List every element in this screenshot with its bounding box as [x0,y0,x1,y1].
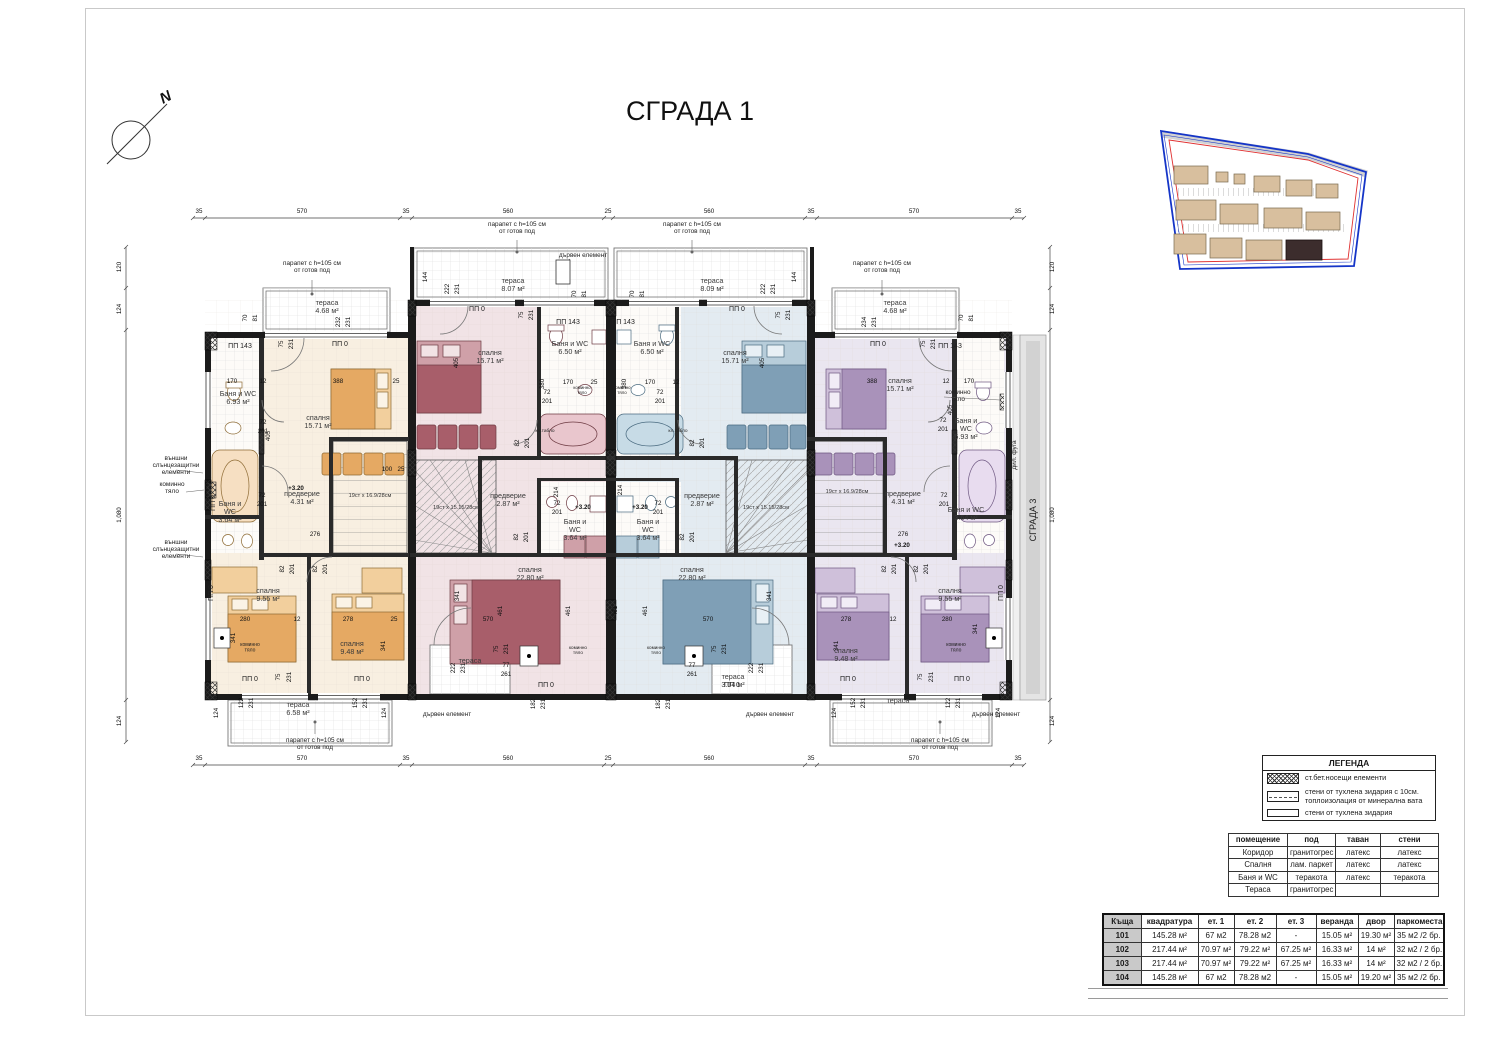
dim-label: 201 [552,509,563,516]
room-label: спалня15.71 м² [721,348,749,365]
dim-label: 201 [689,531,696,542]
dim-label: 201 [923,563,930,574]
table-cell: латекс [1381,859,1439,872]
dim-label: 231 [528,309,535,320]
table-cell: лам. паркет [1288,859,1336,872]
table-cell: Коридор [1229,846,1288,859]
dim-label: 341 [454,590,461,601]
table-cell: латекс [1336,859,1381,872]
room-label: спалня9.55 м² [256,586,280,603]
room-label: спалня9.48 м² [340,639,364,656]
dim-label: 560 [704,755,715,762]
dim-label: 82 [279,565,286,572]
legend-item-label: стени от тухлена зидария с 10см. топлоиз… [1305,788,1422,805]
dim-label: 35 [808,755,815,762]
annotation: дървен елемент [423,711,471,718]
dim-label: 231 [930,338,937,349]
dim-label: 201 [257,501,268,508]
dim-label: 124 [116,303,123,314]
room-label: тераса8.07 м² [501,276,525,293]
dim-label: 72 [260,419,267,426]
dim-label: 75 [711,645,718,652]
table-cell: 15.05 м² [1316,971,1358,986]
legend-item: ст.бет.носещи елементи [1263,771,1435,786]
annotation: външнислънцезащитниелементи [153,455,200,476]
dim-label: 231 [665,698,672,709]
dim-label: 231 [454,283,461,294]
dim-label: 81 [639,290,646,297]
dim-label: 231 [770,283,777,294]
dim-label: 124 [213,707,220,718]
table-cell: 104 [1103,971,1141,986]
table-row: Терасагранитогрес [1229,884,1439,897]
insulated-wall-swatch-icon [1267,791,1299,802]
dim-label: 231 [248,697,255,708]
drawing-sheet: { "title": "СГРАДА 1", "north": {"label"… [0,0,1500,1060]
dim-label: 144 [422,271,429,282]
dim-label: 1,080 [116,507,123,523]
floor-marker: ПП 143 [611,319,635,326]
dim-label: 77 [503,662,510,669]
dim-label: 388 [867,378,878,385]
site-highlighted-building [1286,240,1322,260]
dim-label: 570 [297,208,308,215]
dim-label: 1,080 [1049,507,1056,523]
dim-label: 201 [523,531,530,542]
table-cell: 145.28 м² [1141,929,1198,943]
room-label: тераса6.58 м² [286,700,310,717]
dim-label: 201 [653,509,664,516]
dim-label: 72 [544,389,551,396]
dim-label: 231 [955,697,962,708]
table-row: Спалнялам. паркетлатекслатекс [1229,859,1439,872]
table-row: 103217.44 м²70.97 м²79.22 м²67.25 м²16.3… [1103,957,1444,971]
dim-label: 231 [362,697,369,708]
table-cell: латекс [1336,846,1381,859]
dim-label: 231 [503,643,510,654]
table-cell: 35 м2 /2 бр. [1394,929,1444,943]
annotation: СГРАДА 3 [1028,499,1038,542]
dim-label: 214 [553,486,560,497]
dim-label: 25 [605,755,612,762]
table-cell: 67.25 м² [1276,943,1316,957]
dim-label: 72 [941,492,948,499]
dim-label: 461 [612,605,619,616]
dim-label: 152 [850,697,857,708]
floor-marker: ПП 0 [208,585,215,601]
dim-label: 231 [758,662,765,673]
dim-label: 12 [260,378,267,385]
dim-label: 72 [657,389,664,396]
dim-label: 25 [391,616,398,623]
table-cell [1381,884,1439,897]
floor-marker: ПП 0 [538,682,554,689]
floor-marker: ПП 0 [954,676,970,683]
dim-label: 35 [808,208,815,215]
table-cell: 103 [1103,957,1141,971]
dim-label: 461 [497,605,504,616]
dim-label: 35 [1015,755,1022,762]
table-cell: 16.33 м² [1316,943,1358,957]
dim-label: 72 [940,417,947,424]
table-cell: гранитогрес [1288,846,1336,859]
dim-label: 170 [227,378,238,385]
dim-label: 222 [444,283,451,294]
annotation: дървен елемент [559,252,607,259]
dim-label: 341 [972,623,979,634]
dim-label: 278 [841,616,852,623]
dim-label: 231 [721,643,728,654]
dim-label: 201 [699,437,706,448]
dim-label: 405 [947,404,954,415]
dim-label: 70 [958,314,965,321]
table-cell: 14 м² [1358,957,1394,971]
table-cell: теракота [1381,871,1439,884]
north-line [107,104,167,164]
dim-label: 182 [530,698,537,709]
dim-label: 201 [542,398,553,405]
dim-label: 201 [891,563,898,574]
dim-label: 182 [655,698,662,709]
dim-label: 231 [345,316,352,327]
floor-marker: ПП 143 [228,343,252,350]
floor-marker: ПП 0 [998,585,1005,601]
table-cell: - [1276,971,1316,986]
dim-label: 120 [1049,261,1056,272]
floor-marker: ПП 0 [840,676,856,683]
table-cell: 19.30 м² [1358,929,1394,943]
table-header: ет. 2 [1234,914,1276,929]
north-arrow: N [105,90,185,180]
dim-label: 75 [917,673,924,680]
dim-label: 201 [655,398,666,405]
table-cell: 79.22 м² [1234,943,1276,957]
table-cell: 101 [1103,929,1141,943]
table-cell: 67 м2 [1198,929,1234,943]
table-cell: 70.97 м² [1198,943,1234,957]
table-header: стени [1381,834,1439,847]
dim-label: 25 [605,208,612,215]
dim-label: 75 [920,340,927,347]
dim-label: 75 [278,340,285,347]
dim-label: 12 [294,616,301,623]
table-cell: 32 м2 / 2 бр. [1394,957,1444,971]
table-cell: 78.28 м2 [1234,929,1276,943]
dim-label: 144 [791,271,798,282]
concrete-swatch-icon [1267,773,1299,784]
north-label: N [157,90,176,108]
dim-label: 570 [297,755,308,762]
floor-marker: ПП 0 [469,306,485,313]
table-header: под [1288,834,1336,847]
dim-label: 201 [524,437,531,448]
legend-item-label: ст.бет.носещи елементи [1305,774,1386,783]
dim-label: 261 [687,671,698,678]
table-cell: 32 м2 / 2 бр. [1394,943,1444,957]
table-header: ет. 3 [1276,914,1316,929]
dim-label: 82 [913,565,920,572]
dim-label: 461 [565,605,572,616]
table-row: 101145.28 м²67 м278.28 м2-15.05 м²19.30 … [1103,929,1444,943]
table-header: ет. 1 [1198,914,1234,929]
legend-item: стени от тухлена зидария с 10см. топлоиз… [1263,786,1435,807]
annotation: дил. фуга [1011,440,1018,470]
table-row: Коридоргранитогреслатекслатекс [1229,846,1439,859]
dim-label: 222 [748,662,755,673]
annotation: дървен елемент [746,711,794,718]
floor-marker: ПП 0 [354,676,370,683]
annotation: парапет с h=105 смот готов под [488,221,546,235]
level-mark: +3.20 [288,485,304,492]
floor-marker: ПП 0 [210,495,217,511]
brick-wall-swatch-icon [1267,809,1299,817]
table-cell: 217.44 м² [1141,943,1198,957]
dim-label: 560 [503,208,514,215]
floor-marker: ПП 0 [242,676,258,683]
page-title: СГРАДА 1 [85,96,1295,127]
dim-label: 82 [513,533,520,540]
dim-label: 231 [785,309,792,320]
dim-label: 12 [890,616,897,623]
title-block-line [1088,988,1448,989]
table-cell: 78.28 м2 [1234,971,1276,986]
dim-label: 570 [909,208,920,215]
table-cell: 16.33 м² [1316,957,1358,971]
table-cell: 70.97 м² [1198,957,1234,971]
table-cell: 67 м2 [1198,971,1234,986]
dim-label: 120 [116,261,123,272]
dim-label: 276 [310,531,321,538]
table-cell: 145.28 м² [1141,971,1198,986]
dim-label: 170 [563,379,574,386]
dim-label: 124 [995,707,1002,718]
dim-label: 170 [645,379,656,386]
dim-label: 231 [288,338,295,349]
dim-label: 124 [1049,303,1056,314]
table-row: Баня и WCтеракоталатекстеракота [1229,871,1439,884]
dim-label: 560 [704,208,715,215]
table-cell: 217.44 м² [1141,957,1198,971]
dim-label: 214 [617,484,624,495]
annotation: кл.табло [535,428,554,434]
dim-label: 201 [938,426,949,433]
table-cell: 102 [1103,943,1141,957]
dim-label: 152 [352,697,359,708]
dim-label: 124 [1049,715,1056,726]
dim-label: 380 [539,378,546,389]
table-header: паркоместа [1394,914,1444,929]
dim-label: 234 [861,316,868,327]
dim-label: 232 [335,316,342,327]
dim-label: 75 [493,645,500,652]
dim-label: 35 [403,208,410,215]
dim-label: 405 [453,357,460,368]
dim-label: 124 [116,715,123,726]
table-cell: Баня и WC [1229,871,1288,884]
dim-label: 570 [703,616,714,623]
room-label: спалня22.80 м² [678,565,706,582]
dim-label: 231 [540,698,547,709]
dim-label: 560 [503,755,514,762]
dim-label: 280 [240,616,251,623]
annotation: парапет с h=105 смот готов под [853,260,911,274]
dim-label: 341 [380,640,387,651]
site-plan-inset [1158,126,1370,281]
dim-label: 82 [689,439,696,446]
dim-label: 278 [343,616,354,623]
table-cell: Спалня [1229,859,1288,872]
table-cell: латекс [1381,846,1439,859]
dim-label: 72 [655,500,662,507]
floor-marker: ПП 143 [556,319,580,326]
level-mark: +3.20 [632,504,648,511]
table-cell [1336,884,1381,897]
room-label: спалня9.55 м² [938,586,962,603]
dim-label: 405 [759,357,766,368]
dim-label: 261 [501,671,512,678]
dim-label: 81 [252,314,259,321]
legend-item: стени от тухлена зидария [1263,807,1435,820]
room-label: спалня15.71 м² [886,376,914,393]
dim-label: 570 [909,755,920,762]
room-label: спалня22.80 м² [516,565,544,582]
legend-box: ЛЕГЕНДА ст.бет.носещи елементи стени от … [1262,755,1436,821]
title-block-line [1088,998,1448,999]
room-label: спалня15.71 м² [476,348,504,365]
dim-label: 122 [238,697,245,708]
dim-label: 70 [571,290,578,297]
dim-label: 12 [943,378,950,385]
dim-label: 570 [483,616,494,623]
table-cell: 19.20 м² [1358,971,1394,986]
dim-label: 25 [591,379,598,386]
table-cell: 35 м2 /2 бр. [1394,971,1444,986]
dim-label: 35 [1015,208,1022,215]
dim-label: 75 [518,311,525,318]
table-cell: 67.25 м² [1276,957,1316,971]
dim-label: 201 [258,428,269,435]
dim-label: 122 [945,697,952,708]
floor-marker: ПП 0 [870,341,886,348]
materials-table: помещениеподтаванстениКоридоргранитогрес… [1228,833,1439,897]
dim-label: 201 [939,501,950,508]
dim-label: 231 [871,316,878,327]
table-cell: гранитогрес [1288,884,1336,897]
dim-label: 341 [833,640,840,651]
dim-label: 280 [942,616,953,623]
legend-title: ЛЕГЕНДА [1263,756,1435,771]
dim-label: 461 [642,605,649,616]
table-header: Къща [1103,914,1141,929]
dim-label: 276 [898,531,909,538]
dim-label: 341 [230,632,237,643]
room-label: спалня15.71 м² [304,413,332,430]
dim-label: 231 [928,671,935,682]
dim-label: 81 [581,290,588,297]
dim-label: 170 [964,378,975,385]
dim-label: 380 [621,378,628,389]
dim-label: 222 [450,662,457,673]
annotation: кл.табло [668,428,687,434]
stairs-label: 19ст х 16.9/28см [349,493,392,499]
floor-marker: ПП 0 [332,341,348,348]
room-label: тераса [887,696,910,705]
room-label: тераса4.68 м² [315,298,339,315]
dim-label: 222 [760,283,767,294]
table-cell: 15.05 м² [1316,929,1358,943]
level-mark: +3.20 [894,542,910,549]
annotation: външнислънцезащитниелементи [153,539,200,560]
stairs-label: 19ст х 15.15/28см [433,505,479,511]
room-label: тераса4.68 м² [883,298,907,315]
room-label: тераса8.09 м² [700,276,724,293]
dim-label: 35 [196,208,203,215]
dim-label: 82 [312,565,319,572]
level-mark: +3.20 [575,504,591,511]
dim-label: 231 [460,662,467,673]
stairs-label: 19ст х 15.15/28см [743,505,789,511]
dim-label: 72 [259,492,266,499]
dim-label: 124 [831,707,838,718]
dim-label: 388 [333,378,344,385]
dim-label: 231 [860,697,867,708]
annotation: парапет с h=105 смот готов под [663,221,721,235]
dim-label: 81 [968,314,975,321]
dim-label: 72 [554,500,561,507]
table-header: помещение [1229,834,1288,847]
dim-label: 75 [775,311,782,318]
table-row: 104145.28 м²67 м278.28 м2-15.05 м²19.20 … [1103,971,1444,986]
table-cell: латекс [1336,871,1381,884]
dim-label: 70 [629,290,636,297]
stairs-label: 19ст х 16.9/28см [826,489,869,495]
dim-label: 35 [196,755,203,762]
table-cell: - [1276,929,1316,943]
dim-label: 70 [242,314,249,321]
table-header: квадратура [1141,914,1198,929]
dim-label: 35 [403,755,410,762]
floor-marker: ПП 0 [724,682,740,689]
dim-label: 341 [766,590,773,601]
dim-label: 82 [679,533,686,540]
dim-label: 12 [673,379,680,386]
table-row: 102217.44 м²70.97 м²79.22 м²67.25 м²16.3… [1103,943,1444,957]
dim-label: 100 [382,466,393,473]
dim-label: 124 [381,707,388,718]
dim-label: 201 [289,563,296,574]
table-cell: 79.22 м² [1234,957,1276,971]
table-header: таван [1336,834,1381,847]
floor-plan: тераса4.68 м²Баня и WC6.93 м²спалня15.71… [85,190,1070,815]
dim-label: 25 [393,378,400,385]
floor-marker: ПП 143 [938,343,962,350]
table-cell: 14 м² [1358,943,1394,957]
dim-label: 231 [286,671,293,682]
dim-label: 75 [275,673,282,680]
dim-label: 82 [881,565,888,572]
floor-marker: ПП 0 [729,306,745,313]
table-header: веранда [1316,914,1358,929]
units-table: Къщаквадратурает. 1ет. 2ет. 3верандадвор… [1102,913,1445,986]
dim-label: 201 [322,563,329,574]
table-cell: теракота [1288,871,1336,884]
table-cell: Тераса [1229,884,1288,897]
dim-label: 77 [689,662,696,669]
table-header: двор [1358,914,1394,929]
dim-label: 82 [514,439,521,446]
dim-label: 25 [398,466,405,473]
annotation: коминнотяло [160,481,185,495]
